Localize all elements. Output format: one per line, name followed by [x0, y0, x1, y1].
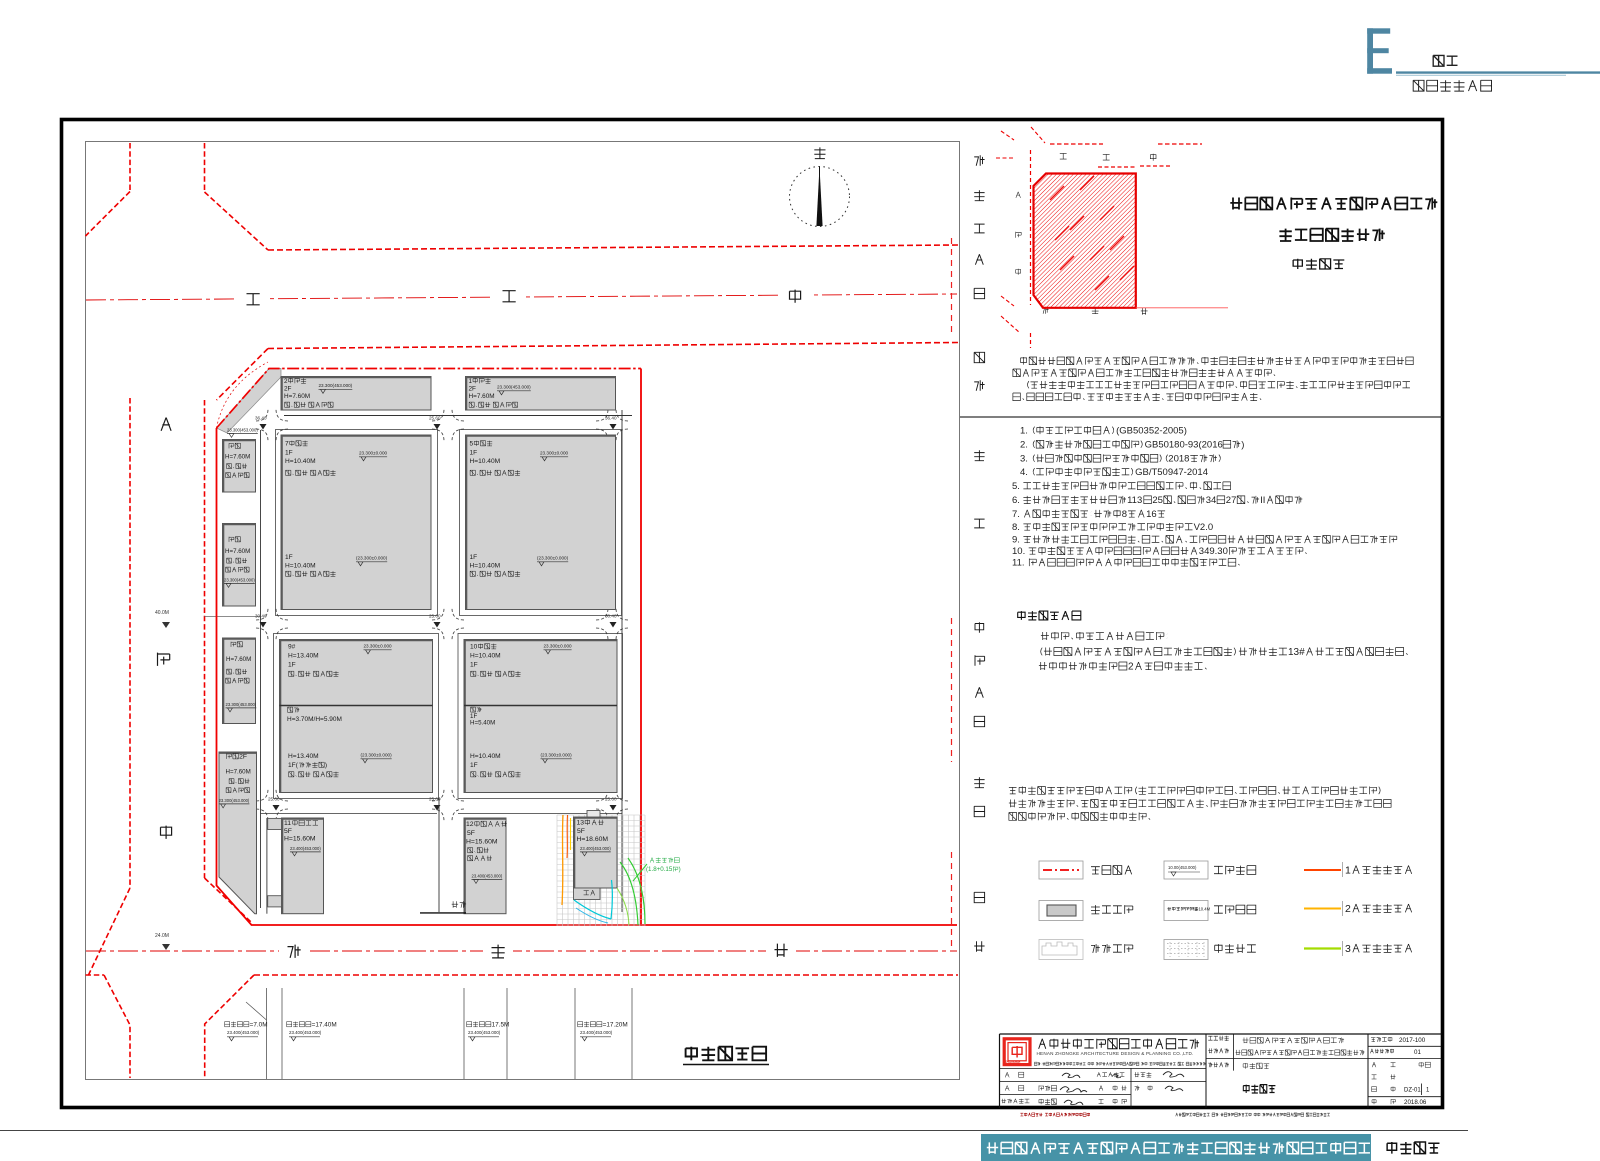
svg-text:23.300±0.000: 23.300±0.000 — [364, 644, 393, 649]
svg-text:5F: 5F — [577, 828, 585, 835]
svg-text:5: 5 — [470, 441, 474, 448]
svg-text:1F: 1F — [470, 762, 478, 769]
svg-text:2018.06: 2018.06 — [1404, 1099, 1427, 1106]
svg-text:23.300(453.000): 23.300(453.000) — [219, 798, 250, 803]
svg-text:(23.300±0.000): (23.300±0.000) — [361, 753, 393, 758]
svg-text:23.400(453.000): 23.400(453.000) — [468, 1030, 501, 1035]
svg-text:=17.40M: =17.40M — [312, 1021, 337, 1028]
svg-text:23.300±0.000: 23.300±0.000 — [544, 644, 573, 649]
svg-text:H=10.40M: H=10.40M — [285, 563, 316, 570]
svg-text:GB50180-93(2016: GB50180-93(2016 — [1145, 440, 1223, 451]
svg-text:23.400(453.000): 23.400(453.000) — [289, 1030, 322, 1035]
svg-text:23.300(453.000): 23.300(453.000) — [319, 383, 353, 388]
svg-text:10.00(453.000): 10.00(453.000) — [1168, 865, 1197, 870]
svg-text:349.30: 349.30 — [1199, 546, 1228, 557]
svg-text:H=10.40M: H=10.40M — [470, 753, 501, 760]
svg-text:7.: 7. — [1012, 509, 1020, 520]
svg-text:17.5M: 17.5M — [492, 1021, 510, 1028]
svg-text:): ) — [679, 866, 681, 873]
svg-text:23.300±0.000: 23.300±0.000 — [359, 451, 388, 456]
svg-text:H=10.40M: H=10.40M — [470, 458, 501, 465]
svg-text:H=7.60M: H=7.60M — [226, 769, 251, 776]
svg-text:3: 3 — [1345, 943, 1351, 955]
svg-text:25.60: 25.60 — [429, 416, 441, 421]
svg-text:(23.300±0.000): (23.300±0.000) — [356, 556, 388, 561]
svg-text:2: 2 — [1345, 903, 1351, 915]
svg-text:H=18.60M: H=18.60M — [577, 836, 609, 843]
svg-text:HENAN ZHONGKE ARCHITECTURE DES: HENAN ZHONGKE ARCHITECTURE DESIGN & PLAN… — [1037, 1051, 1194, 1056]
svg-text:(GB50352-2005): (GB50352-2005) — [1116, 426, 1187, 437]
svg-text:2F: 2F — [239, 754, 247, 761]
svg-text:1F: 1F — [470, 450, 478, 457]
svg-text:5.: 5. — [1012, 481, 1020, 492]
svg-text:23.400(453.000): 23.400(453.000) — [227, 1030, 260, 1035]
svg-text:1F: 1F — [285, 450, 293, 457]
svg-text:10.: 10. — [1012, 546, 1025, 557]
svg-text:(1.8+0.15: (1.8+0.15 — [646, 866, 673, 873]
svg-text:1F: 1F — [470, 662, 478, 669]
svg-text:01: 01 — [1414, 1049, 1421, 1056]
svg-text:23.300(453.000): 23.300(453.000) — [224, 577, 255, 582]
svg-text:23.300±0.000: 23.300±0.000 — [540, 451, 569, 456]
svg-text:GB/T50947-2014: GB/T50947-2014 — [1135, 467, 1208, 478]
svg-text:): ) — [1241, 440, 1244, 451]
svg-text:36.40: 36.40 — [255, 416, 267, 421]
svg-text:H=13.40M: H=13.40M — [288, 653, 319, 660]
svg-text:5F: 5F — [467, 830, 475, 837]
svg-text:30.40: 30.40 — [255, 614, 267, 619]
svg-text:30.40: 30.40 — [605, 614, 617, 619]
svg-text:4.: 4. — [1020, 467, 1028, 478]
svg-text:1: 1 — [1345, 864, 1351, 876]
svg-text:13#: 13# — [1288, 647, 1305, 658]
svg-text:): ) — [325, 762, 327, 769]
svg-text:H=5.40M: H=5.40M — [470, 720, 495, 727]
svg-text:113: 113 — [1127, 495, 1142, 506]
svg-text:1F(: 1F( — [288, 762, 299, 769]
svg-text:12: 12 — [466, 821, 474, 828]
svg-text:6.: 6. — [1012, 495, 1020, 506]
svg-text:25.60: 25.60 — [605, 797, 617, 802]
svg-text:8: 8 — [1122, 509, 1127, 520]
svg-text:H=7.60M: H=7.60M — [226, 656, 251, 663]
svg-text:34: 34 — [1206, 495, 1217, 506]
svg-text:8.: 8. — [1012, 522, 1020, 533]
svg-text:DZ-01: DZ-01 — [1404, 1087, 1421, 1093]
svg-text:23.400(453.000): 23.400(453.000) — [580, 1030, 613, 1035]
svg-text:1F: 1F — [285, 554, 293, 561]
svg-text:(23.300±0.000): (23.300±0.000) — [541, 753, 573, 758]
svg-text:25.60: 25.60 — [429, 614, 441, 619]
svg-text:2: 2 — [1128, 661, 1134, 672]
svg-text:11.: 11. — [1012, 558, 1025, 569]
svg-text:H=10.4M: H=10.4M — [1193, 906, 1211, 911]
svg-text:23.300(453.000): 23.300(453.000) — [226, 702, 257, 707]
svg-text:H=7.60M: H=7.60M — [225, 548, 250, 555]
svg-text:23.400(453.000): 23.400(453.000) — [472, 873, 503, 878]
svg-text:11: 11 — [284, 820, 291, 827]
svg-text:1F: 1F — [288, 662, 296, 669]
svg-text:(23.300±0.000): (23.300±0.000) — [537, 556, 569, 561]
svg-text:23.300(453.000): 23.300(453.000) — [497, 385, 531, 390]
svg-text:25: 25 — [1152, 495, 1163, 506]
svg-text:23.400(453.000): 23.400(453.000) — [580, 846, 611, 851]
svg-text:9.: 9. — [1012, 535, 1020, 546]
svg-text:=17.20M: =17.20M — [603, 1021, 628, 1028]
svg-text:16: 16 — [1146, 509, 1157, 520]
svg-text:2018: 2018 — [1168, 454, 1189, 465]
svg-text:H=3.70M/H=5.90M: H=3.70M/H=5.90M — [287, 716, 342, 723]
svg-text:II: II — [1260, 495, 1265, 506]
svg-text:13: 13 — [577, 820, 585, 827]
svg-text:H=10.40M: H=10.40M — [285, 458, 316, 465]
svg-text:2F: 2F — [284, 385, 292, 392]
svg-text:H=7.60M: H=7.60M — [225, 454, 250, 461]
svg-text:5F: 5F — [284, 828, 292, 835]
svg-text:2.: 2. — [1020, 440, 1028, 451]
svg-text:1.: 1. — [1020, 426, 1028, 437]
svg-text:2F: 2F — [469, 385, 477, 392]
svg-text:1F: 1F — [470, 554, 478, 561]
svg-text:H=7.60M: H=7.60M — [284, 393, 310, 400]
svg-text:H=15.60M: H=15.60M — [466, 839, 498, 846]
svg-text:H=15.60M: H=15.60M — [284, 836, 316, 843]
svg-text:24.0M: 24.0M — [155, 933, 169, 939]
svg-text:H=10.40M: H=10.40M — [470, 563, 501, 570]
svg-text:V2.0: V2.0 — [1194, 522, 1214, 533]
svg-text:25.60: 25.60 — [268, 797, 280, 802]
svg-text:2017-100: 2017-100 — [1399, 1037, 1426, 1044]
svg-text:3.: 3. — [1020, 454, 1028, 465]
svg-text:10: 10 — [470, 644, 478, 651]
svg-text:36.40: 36.40 — [605, 416, 617, 421]
svg-text:9#: 9# — [288, 644, 296, 651]
svg-text:2: 2 — [284, 378, 288, 385]
svg-text:H=7.60M: H=7.60M — [469, 393, 495, 400]
svg-text:7: 7 — [285, 441, 289, 448]
svg-text:27: 27 — [1226, 495, 1237, 506]
svg-text:H=10.40M: H=10.40M — [470, 653, 501, 660]
svg-text:40.0M: 40.0M — [155, 610, 169, 616]
svg-text:23.400(453.000): 23.400(453.000) — [290, 846, 321, 851]
svg-text:ZHONGKE: ZHONGKE — [1005, 1060, 1021, 1064]
svg-text:23.300(453.000): 23.300(453.000) — [227, 427, 258, 432]
svg-text:1: 1 — [469, 378, 473, 385]
svg-text:H=13.40M: H=13.40M — [288, 753, 319, 760]
svg-text:=7.0M: =7.0M — [250, 1021, 268, 1028]
